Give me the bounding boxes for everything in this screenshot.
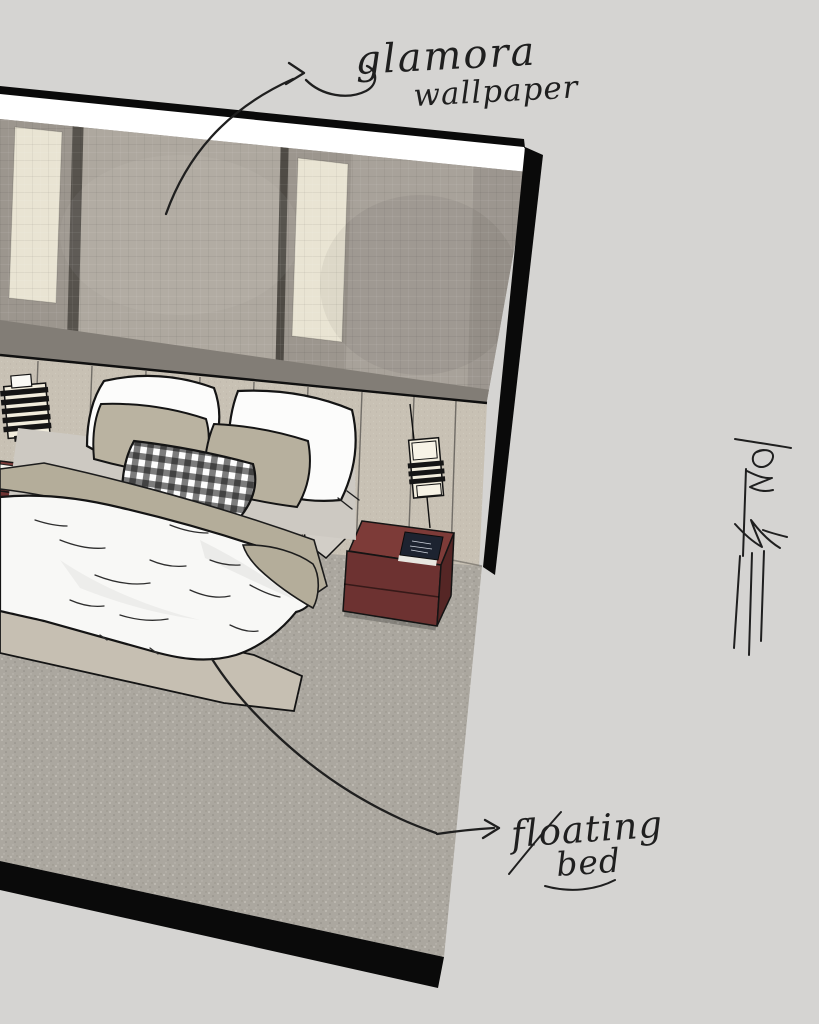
wallpaper-label-line2: wallpaper xyxy=(413,69,581,114)
bedroom-render-canvas: glamora wallpaper floating bed xyxy=(0,0,819,1024)
design-board: glamora wallpaper floating bed xyxy=(0,0,819,1024)
room-render xyxy=(0,86,555,988)
signature-mark xyxy=(734,439,791,655)
nightstand-right xyxy=(343,521,454,628)
book-right xyxy=(398,532,443,566)
bed-label-line2: bed xyxy=(555,841,622,884)
